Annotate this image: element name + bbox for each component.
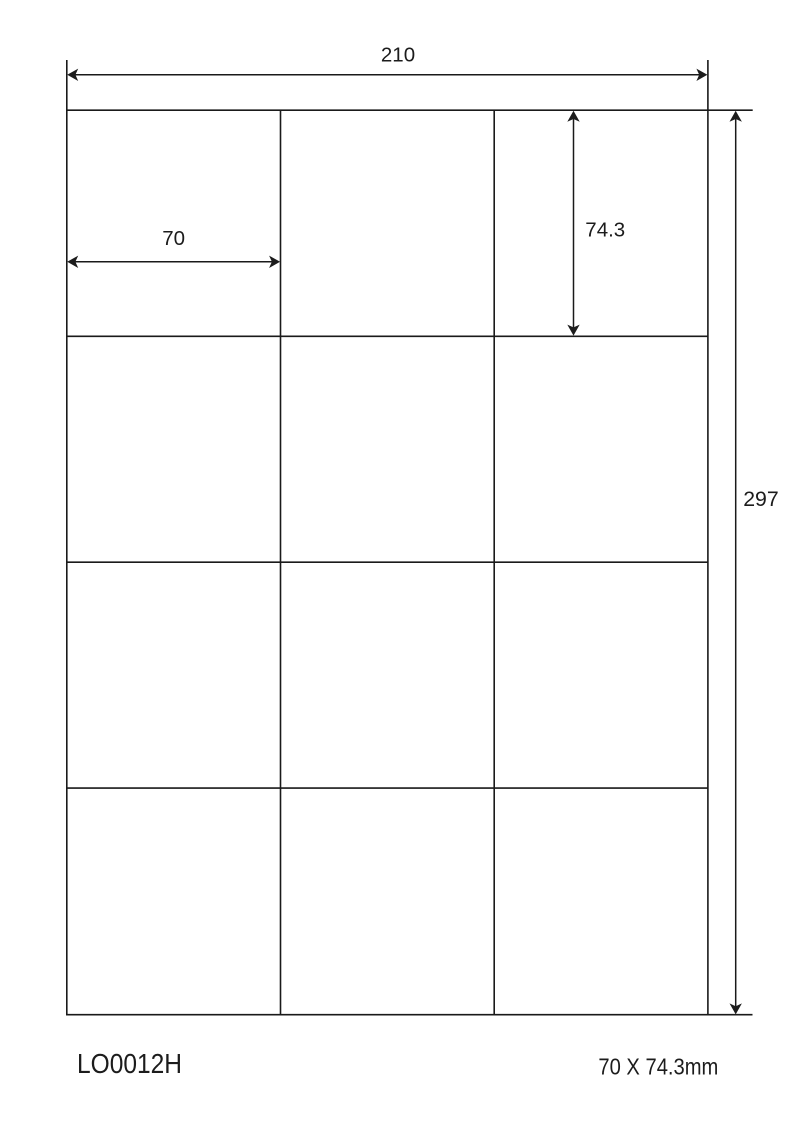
svg-text:70: 70 [162,227,185,250]
svg-text:70 X 74.3mm: 70 X 74.3mm [598,1053,718,1080]
svg-text:297: 297 [743,487,779,511]
svg-text:210: 210 [381,44,415,67]
svg-text:LO0012H: LO0012H [77,1047,182,1079]
svg-text:74.3: 74.3 [585,218,625,241]
